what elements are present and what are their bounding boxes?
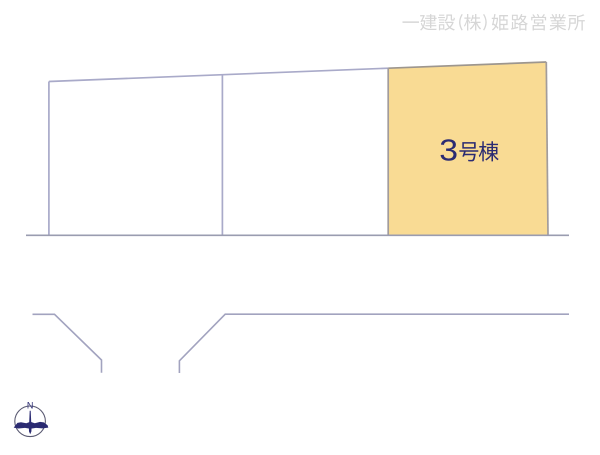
svg-text:3: 3: [439, 133, 458, 168]
svg-text:N: N: [27, 400, 34, 410]
